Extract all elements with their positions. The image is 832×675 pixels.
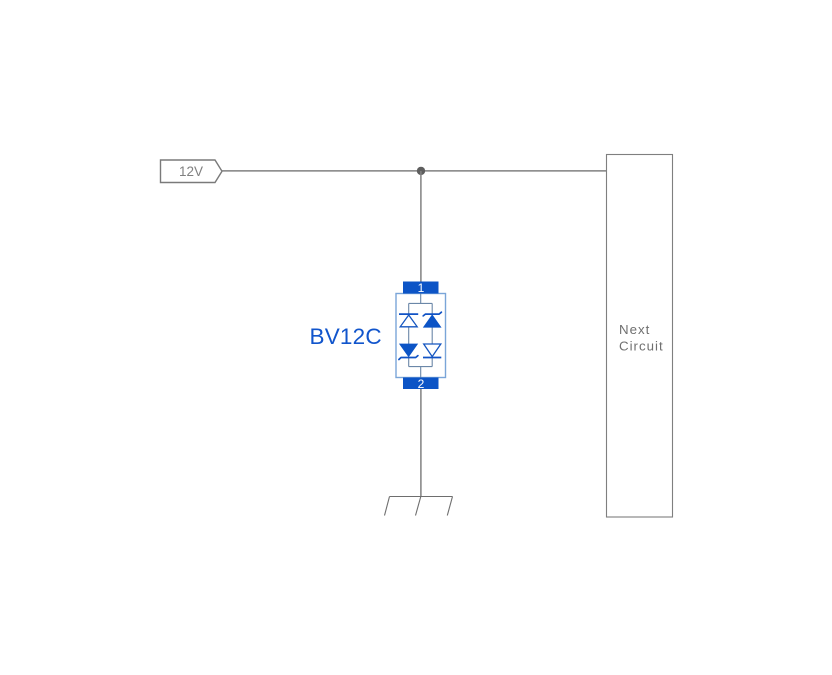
svg-text:Next: Next (619, 322, 650, 337)
svg-text:BV12C: BV12C (310, 324, 382, 349)
svg-text:1: 1 (418, 281, 425, 295)
svg-text:Circuit: Circuit (619, 339, 664, 354)
svg-text:2: 2 (418, 377, 425, 391)
svg-text:12V: 12V (179, 164, 203, 179)
